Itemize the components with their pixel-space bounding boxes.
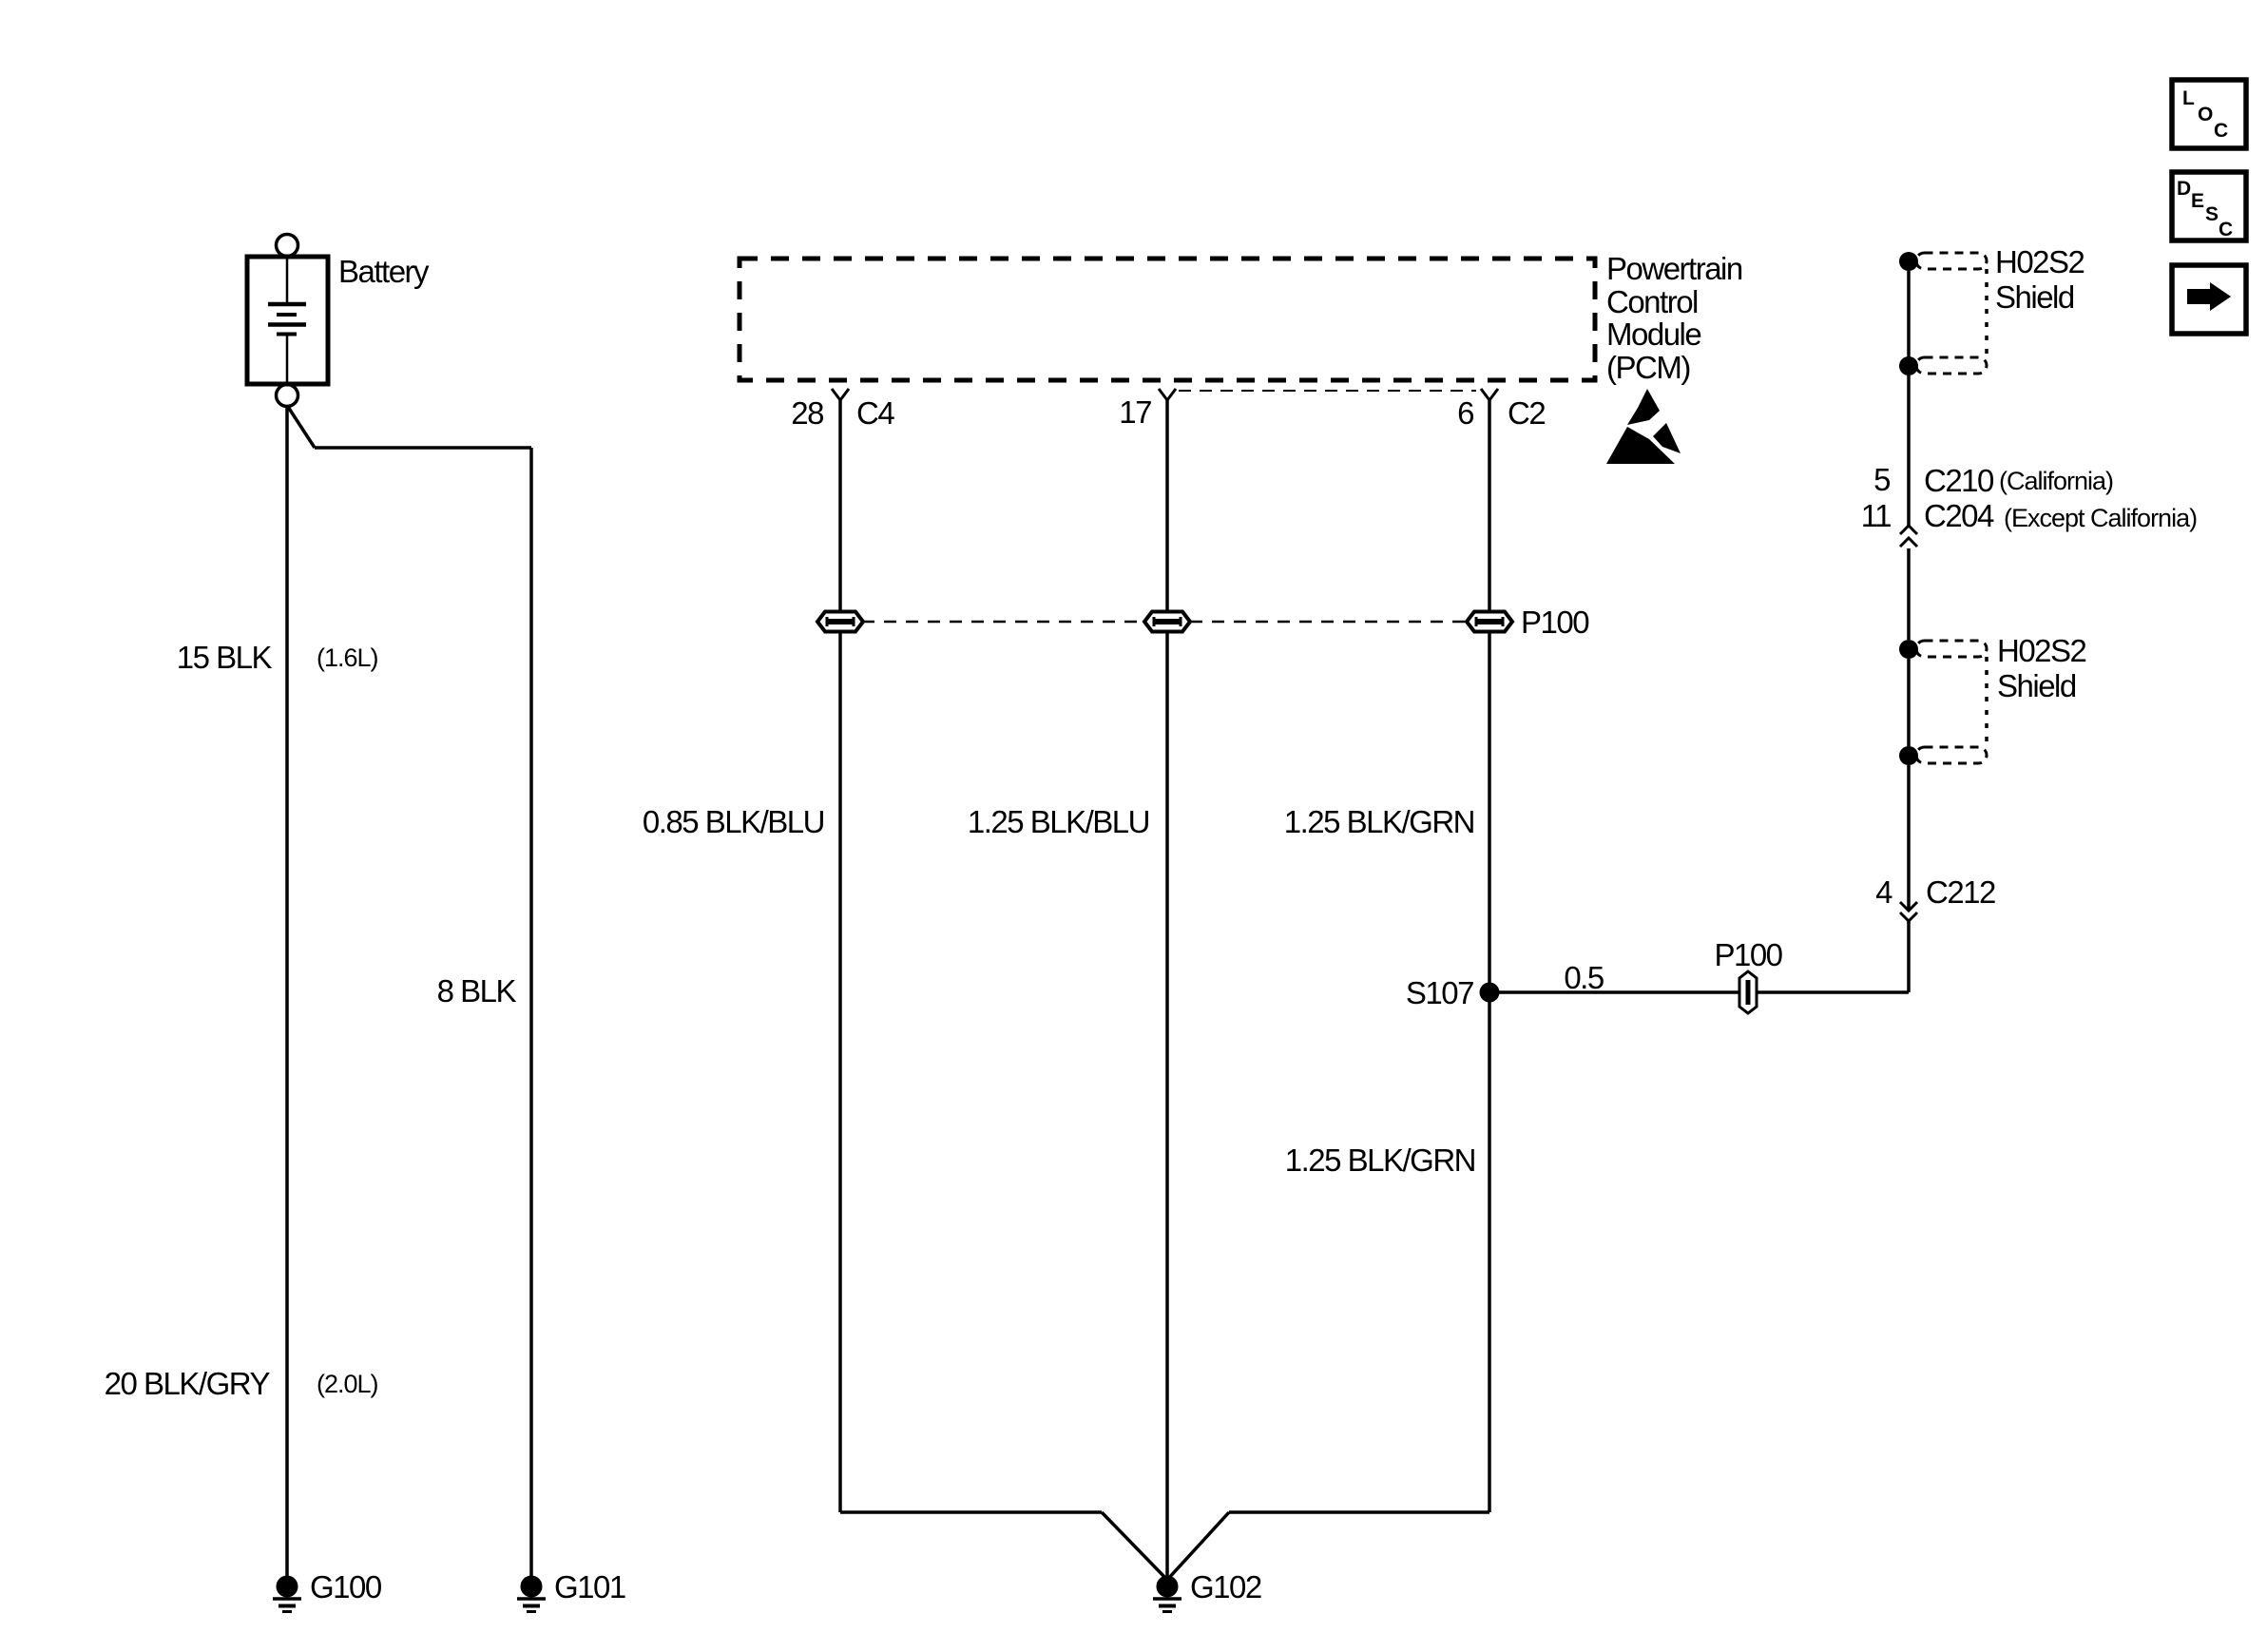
- svg-text:C4: C4: [856, 395, 894, 431]
- svg-text:15 BLK: 15 BLK: [177, 640, 273, 675]
- svg-text:H02S2: H02S2: [1997, 633, 2086, 668]
- svg-text:(2.0L): (2.0L): [317, 1370, 378, 1398]
- svg-text:P100: P100: [1521, 605, 1589, 640]
- svg-text:G102: G102: [1190, 1569, 1261, 1604]
- svg-text:Shield: Shield: [1997, 668, 2076, 703]
- svg-text:(1.6L): (1.6L): [317, 644, 378, 672]
- svg-text:C2: C2: [1508, 395, 1545, 431]
- svg-text:28: 28: [791, 395, 823, 431]
- svg-text:0.85 BLK/BLU: 0.85 BLK/BLU: [643, 804, 824, 839]
- svg-text:S107: S107: [1406, 975, 1473, 1010]
- svg-text:Module: Module: [1606, 317, 1700, 352]
- svg-text:C: C: [2219, 219, 2233, 240]
- svg-text:O: O: [2198, 104, 2213, 125]
- svg-text:0.5: 0.5: [1564, 960, 1604, 995]
- svg-text:C204: C204: [1924, 498, 1994, 533]
- svg-text:(California): (California): [1999, 467, 2113, 495]
- svg-text:Battery: Battery: [338, 254, 430, 289]
- svg-text:1.25 BLK/GRN: 1.25 BLK/GRN: [1285, 1143, 1475, 1178]
- svg-text:G100: G100: [310, 1569, 382, 1604]
- svg-text:8 BLK: 8 BLK: [437, 973, 517, 1008]
- svg-text:(Except California): (Except California): [2004, 504, 2197, 532]
- svg-text:20 BLK/GRY: 20 BLK/GRY: [105, 1366, 271, 1401]
- svg-text:(PCM): (PCM): [1606, 350, 1690, 385]
- svg-text:1.25 BLK/GRN: 1.25 BLK/GRN: [1284, 804, 1474, 839]
- svg-text:C: C: [2214, 120, 2228, 142]
- svg-text:Powertrain: Powertrain: [1606, 251, 1742, 286]
- svg-text:S: S: [2205, 203, 2219, 225]
- svg-text:D: D: [2177, 178, 2191, 200]
- svg-text:11: 11: [1861, 498, 1891, 533]
- svg-text:L: L: [2182, 87, 2195, 109]
- svg-text:P100: P100: [1714, 937, 1782, 972]
- svg-text:C212: C212: [1926, 874, 1995, 910]
- svg-text:4: 4: [1875, 874, 1892, 910]
- svg-text:C210: C210: [1924, 463, 1994, 498]
- svg-text:5: 5: [1873, 462, 1890, 497]
- svg-text:E: E: [2191, 190, 2204, 212]
- svg-text:6: 6: [1457, 395, 1473, 431]
- svg-text:1.25 BLK/BLU: 1.25 BLK/BLU: [968, 804, 1149, 839]
- svg-text:17: 17: [1119, 394, 1151, 430]
- svg-text:G101: G101: [554, 1569, 625, 1604]
- svg-text:Control: Control: [1606, 284, 1698, 319]
- svg-text:H02S2: H02S2: [1995, 244, 2084, 279]
- svg-text:Shield: Shield: [1995, 279, 2074, 315]
